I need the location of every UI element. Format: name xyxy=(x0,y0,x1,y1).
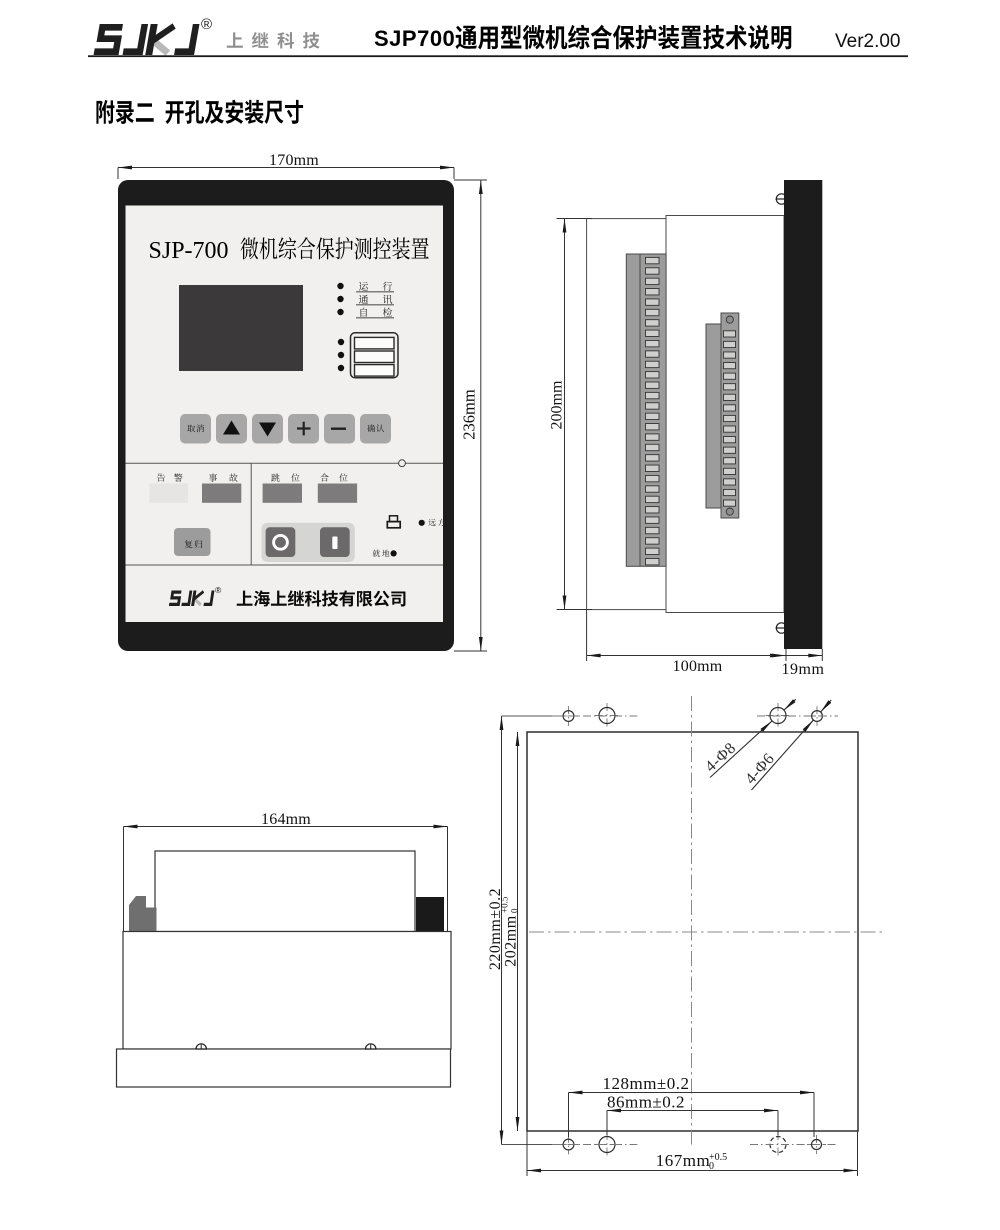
svg-text:128mm±0.2: 128mm±0.2 xyxy=(602,1074,689,1093)
svg-text:®: ® xyxy=(215,585,222,595)
svg-text:4-Φ8: 4-Φ8 xyxy=(702,739,739,775)
svg-text:0: 0 xyxy=(510,908,520,913)
svg-text:SJP700: SJP700 xyxy=(374,26,455,51)
svg-text:164mm: 164mm xyxy=(261,811,311,828)
svg-text:4-Φ6: 4-Φ6 xyxy=(742,750,778,788)
svg-text:Ver2.00: Ver2.00 xyxy=(835,31,901,52)
svg-text:202mm: 202mm xyxy=(503,915,520,966)
svg-text:86mm±0.2: 86mm±0.2 xyxy=(607,1093,685,1112)
svg-text:19mm: 19mm xyxy=(782,661,825,678)
svg-text:SJP-700: SJP-700 xyxy=(149,238,229,264)
svg-text:®: ® xyxy=(201,16,212,33)
svg-text:+0.5: +0.5 xyxy=(500,896,510,913)
svg-text:167mm: 167mm xyxy=(656,1151,710,1170)
svg-text:236mm: 236mm xyxy=(460,389,479,440)
svg-text:100mm: 100mm xyxy=(673,658,723,675)
svg-text:170mm: 170mm xyxy=(269,152,319,169)
svg-text:200mm: 200mm xyxy=(549,380,566,429)
svg-text:0: 0 xyxy=(709,1161,714,1172)
